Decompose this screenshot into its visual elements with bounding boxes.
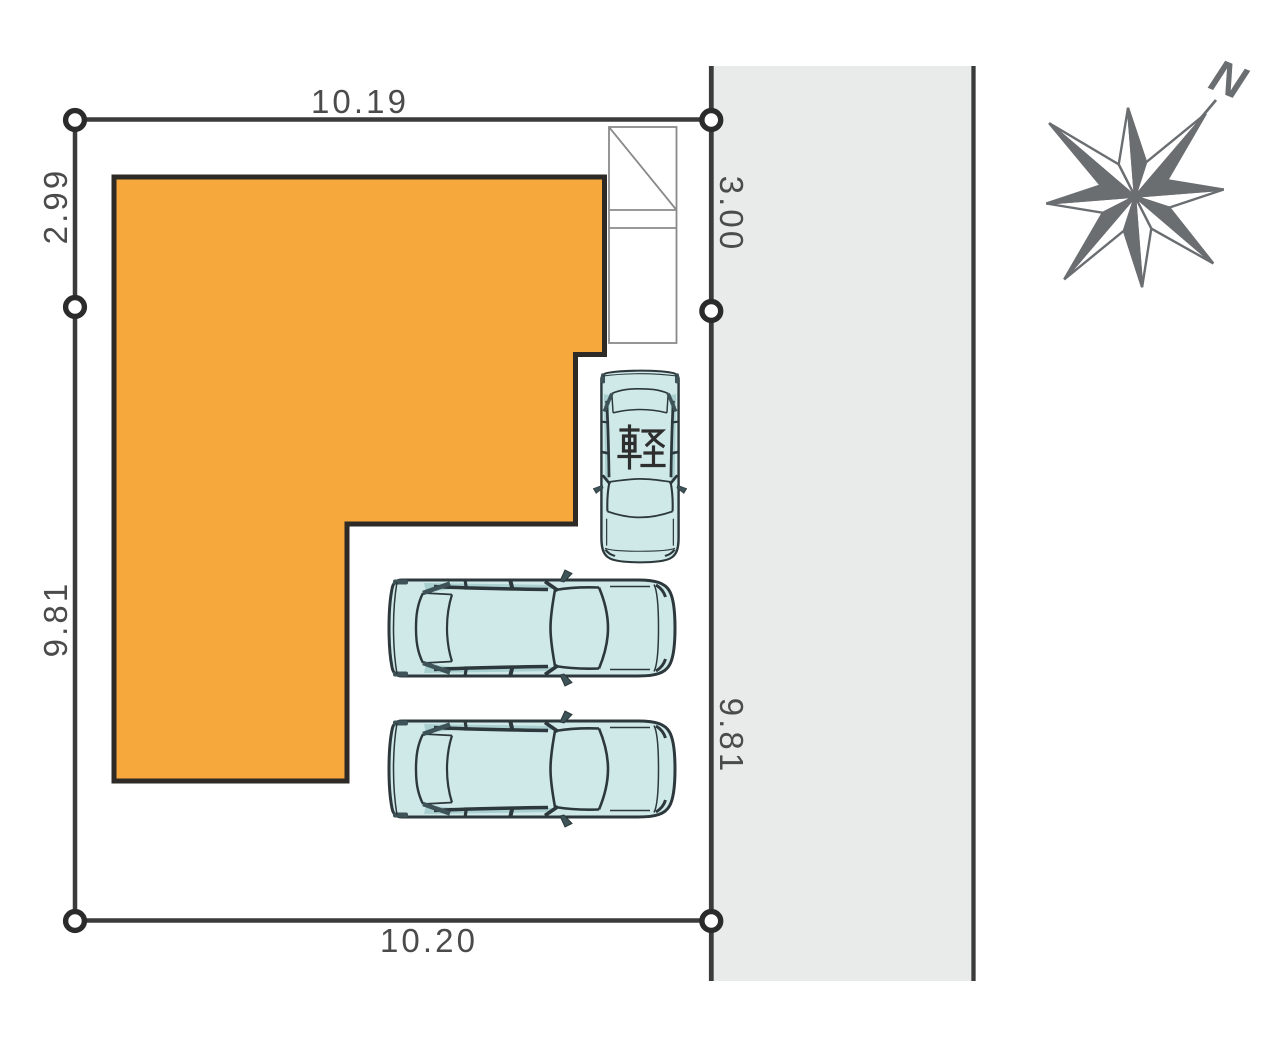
svg-text:9.81: 9.81 — [37, 581, 74, 658]
svg-text:9.81: 9.81 — [713, 698, 750, 775]
svg-text:2.99: 2.99 — [37, 168, 74, 245]
svg-text:10.20: 10.20 — [380, 922, 478, 959]
svg-text:N: N — [1203, 49, 1254, 110]
svg-text:10.19: 10.19 — [311, 83, 409, 120]
svg-text:3.00: 3.00 — [713, 176, 750, 253]
